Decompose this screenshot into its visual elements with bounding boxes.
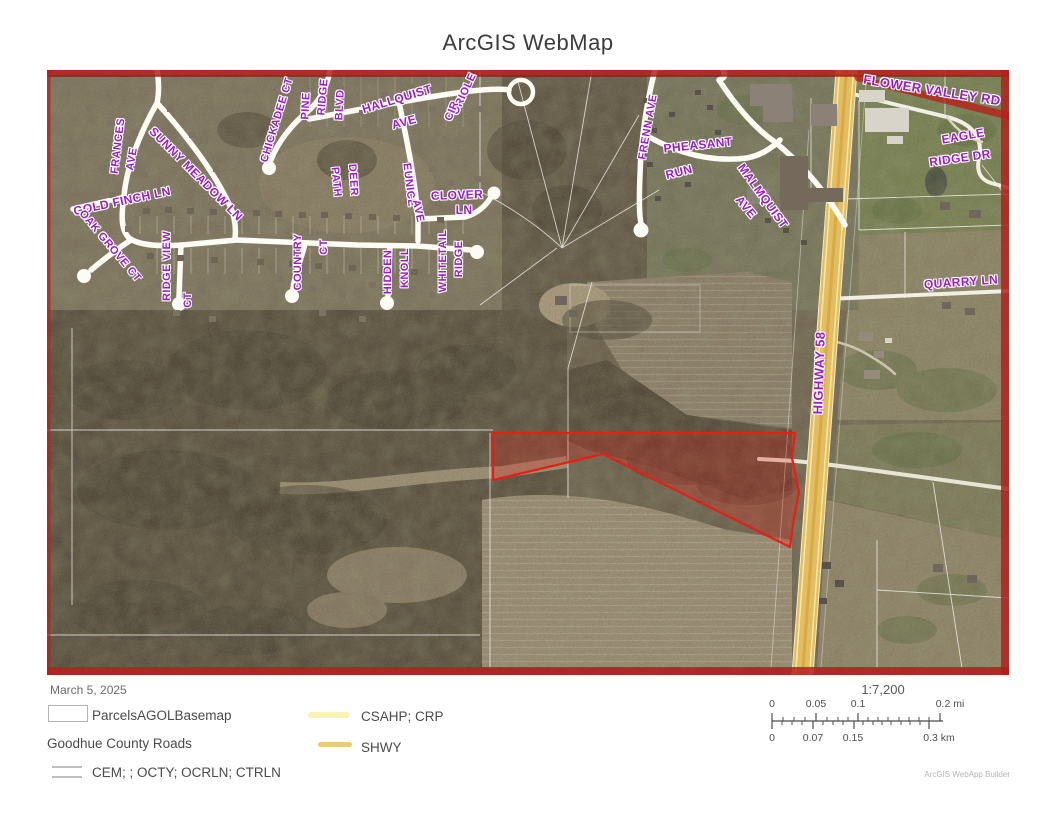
scale-km-2: 0.15 [843,732,863,744]
scale-mi-1: 0.05 [806,698,826,710]
legend-shwy-label: SHWY [361,740,402,755]
scale-km-0: 0 [769,732,775,744]
page-title: ArcGIS WebMap [0,30,1056,56]
scale-mi-2: 0.1 [851,698,866,710]
aerial-basemap [47,70,1009,675]
scale-mi-0: 0 [769,698,775,710]
scale-ruler [758,712,1008,730]
csahp-line-swatch [308,712,350,718]
shwy-line-swatch [318,742,352,747]
scale-ratio: 1:7,200 [828,682,938,697]
scale-mi-3: 0.2 mi [936,698,965,710]
scale-bar: 1:7,200 0 0.05 0.1 0.2 mi 0 0.07 0.15 0.… [758,682,1018,752]
cem-line-swatch [52,766,82,778]
attribution: ArcGIS WebApp Builder [905,770,1010,779]
map-canvas[interactable]: FLOWER VALLEY RDEAGLERIDGE DRQUARRY LNHI… [47,70,1009,675]
scale-km-3: 0.3 km [923,732,955,744]
legend-parcels-label: ParcelsAGOLBasemap [92,708,232,723]
scale-km-1: 0.07 [803,732,823,744]
parcels-swatch [48,705,88,722]
legend-csahp-label: CSAHP; CRP [361,709,444,724]
legend-roads-heading: Goodhue County Roads [47,736,192,751]
map-date: March 5, 2025 [50,683,127,697]
legend-cem-label: CEM; ; OCTY; OCRLN; CTRLN [92,765,281,780]
